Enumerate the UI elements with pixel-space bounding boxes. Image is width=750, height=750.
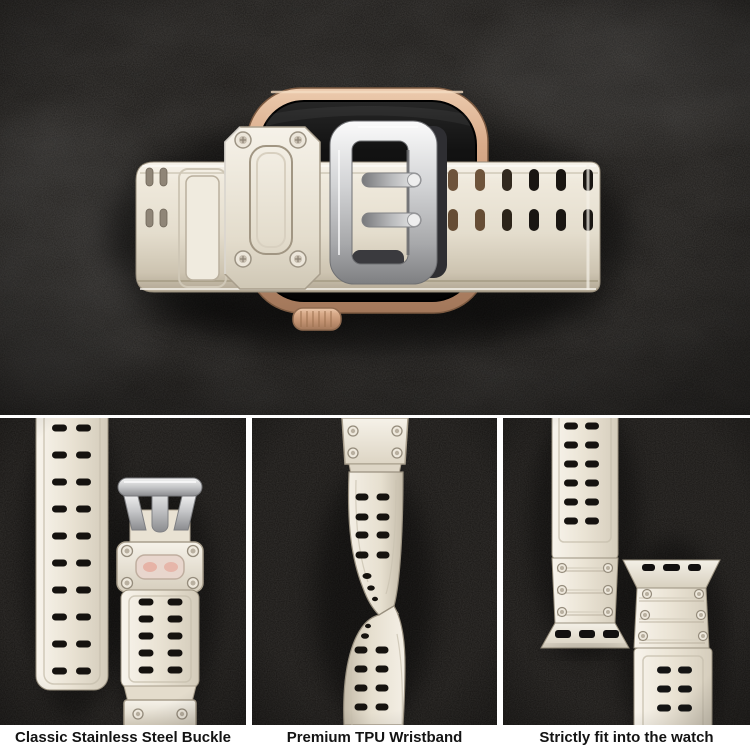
vignette: [0, 0, 750, 415]
hero-photo-watch-top-view: [0, 0, 750, 415]
hero-section: [0, 0, 750, 415]
detail-panels: [0, 415, 750, 725]
caption-strict-fit: Strictly fit into the watch: [503, 725, 750, 750]
photo-lug-connectors: [503, 418, 750, 725]
photo-buckle-detail: [0, 418, 246, 725]
panel-buckle: [0, 418, 246, 725]
caption-premium-wristband: Premium TPU Wristband: [252, 725, 497, 750]
panel-wristband: [252, 418, 497, 725]
photo-twisted-band: [252, 418, 497, 725]
panel-fit: [503, 418, 750, 725]
caption-classic-buckle: Classic Stainless Steel Buckle: [0, 725, 246, 750]
caption-bar: Classic Stainless Steel Buckle Premium T…: [0, 725, 750, 750]
product-image: Classic Stainless Steel Buckle Premium T…: [0, 0, 750, 750]
